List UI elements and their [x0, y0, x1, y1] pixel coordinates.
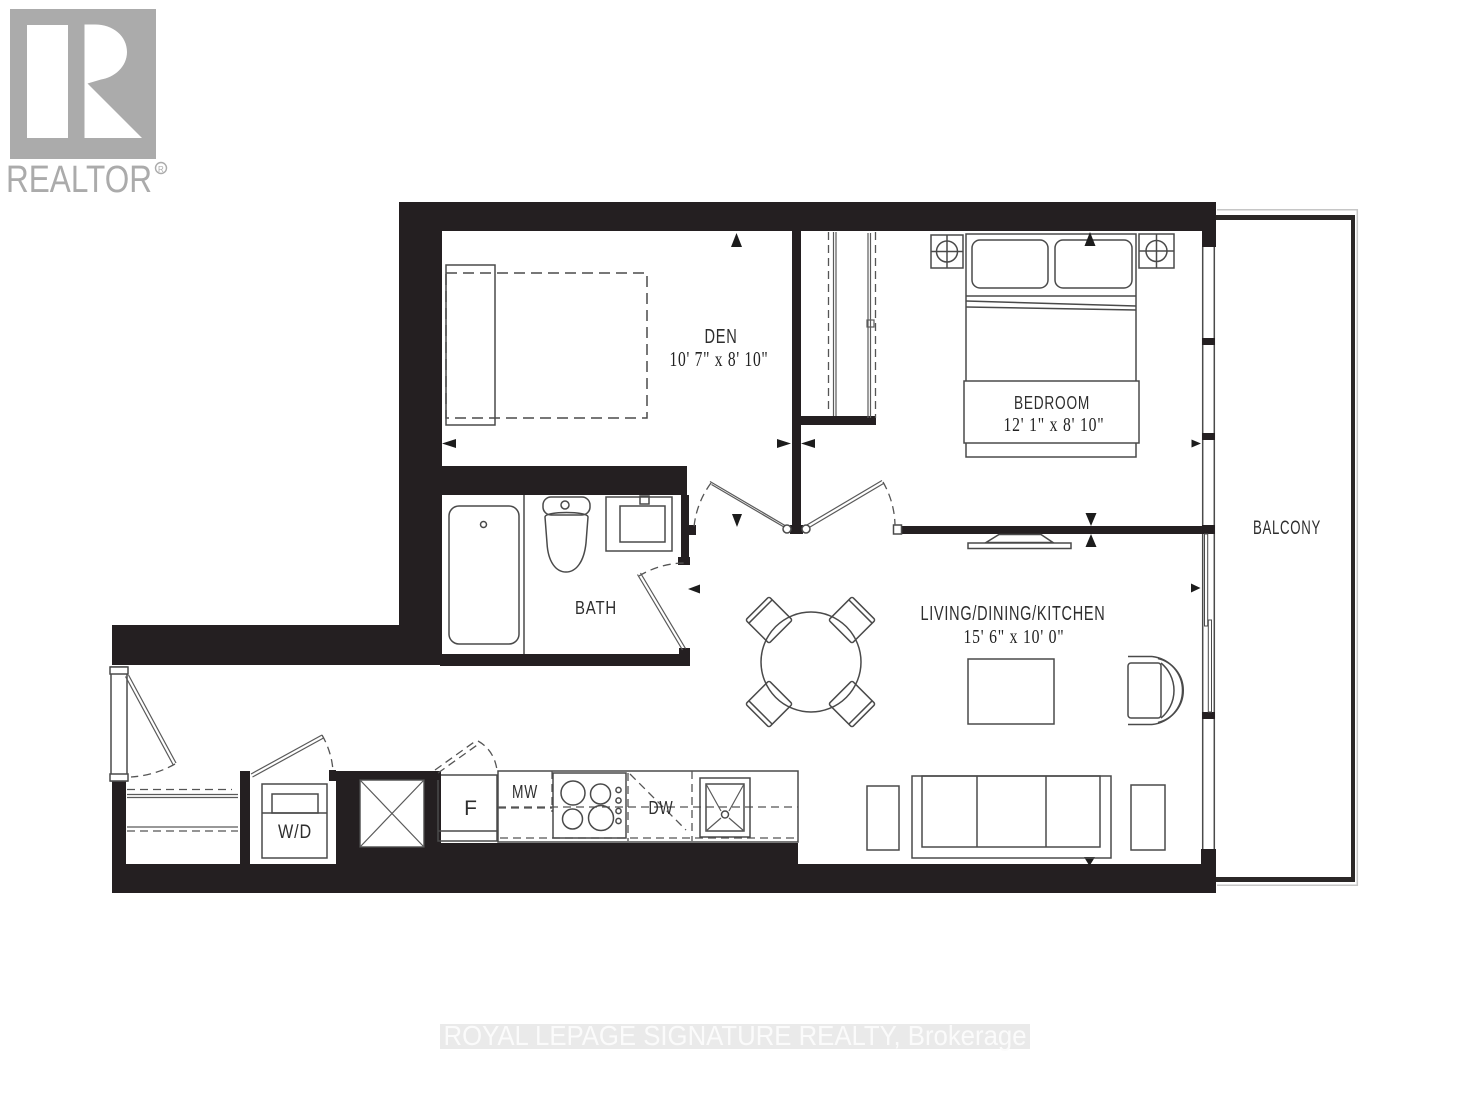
- svg-text:LIVING/DINING/KITCHEN: LIVING/DINING/KITCHEN: [921, 603, 1106, 625]
- svg-text:12' 1" x 8' 10": 12' 1" x 8' 10": [1004, 414, 1105, 436]
- svg-text:DEN: DEN: [705, 326, 738, 348]
- svg-text:W/D: W/D: [278, 822, 312, 843]
- svg-text:15' 6" x 10' 0": 15' 6" x 10' 0": [964, 626, 1065, 648]
- svg-text:ROYAL LEPAGE SIGNATURE REALTY,: ROYAL LEPAGE SIGNATURE REALTY, Brokerage: [444, 1020, 1027, 1051]
- svg-text:REALTOR: REALTOR: [6, 159, 152, 201]
- svg-text:BATH: BATH: [575, 598, 617, 618]
- svg-text:DW: DW: [649, 798, 674, 818]
- svg-text:BEDROOM: BEDROOM: [1014, 393, 1090, 413]
- svg-text:MW: MW: [512, 782, 538, 802]
- svg-text:BALCONY: BALCONY: [1253, 518, 1321, 539]
- svg-text:10' 7" x 8' 10": 10' 7" x 8' 10": [670, 347, 769, 371]
- svg-text:R: R: [158, 165, 164, 174]
- svg-text:F: F: [464, 797, 478, 820]
